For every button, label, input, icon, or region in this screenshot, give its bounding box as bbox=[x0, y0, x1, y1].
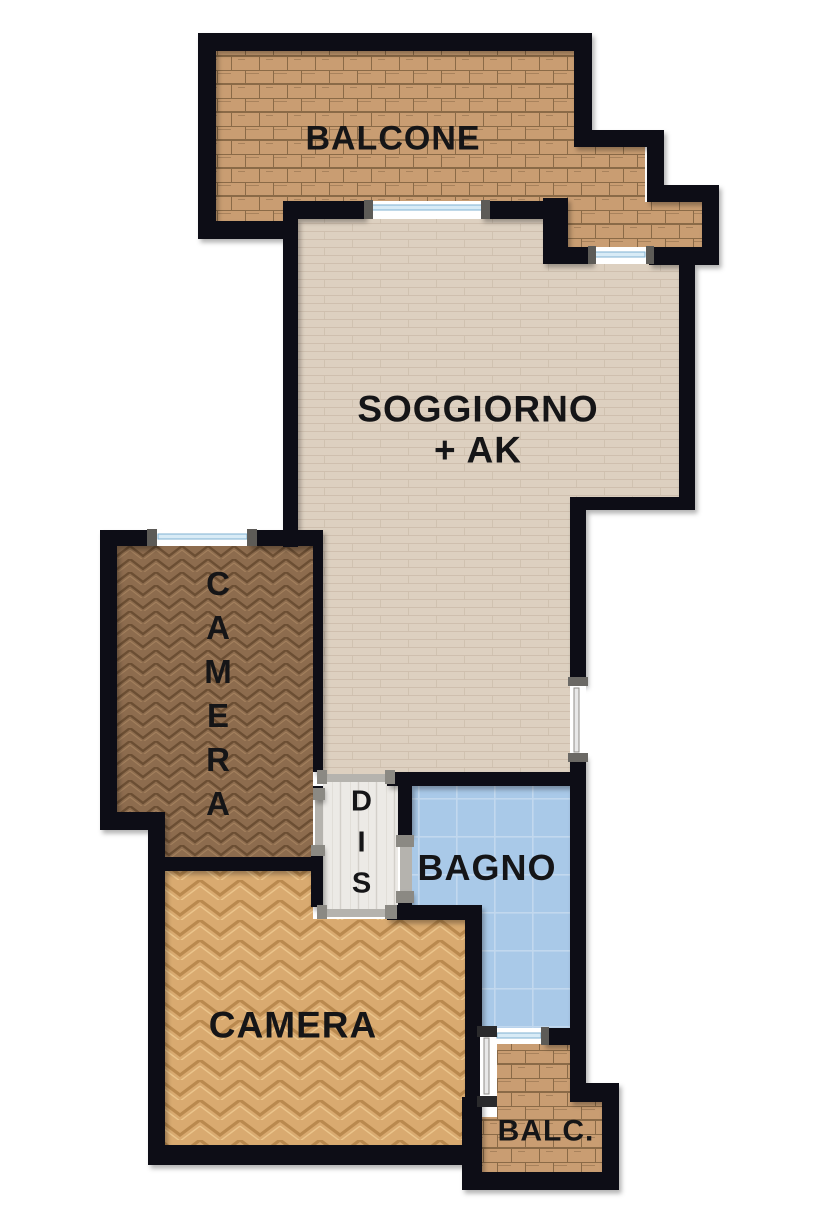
window-balcone-soggiorno bbox=[364, 200, 490, 219]
label-dis: DIS bbox=[347, 786, 376, 909]
floor-plan: BALCONE SOGGIORNO + AK CAMERA DIS BAGNO … bbox=[0, 0, 819, 1229]
label-soggiorno: SOGGIORNO + AK bbox=[357, 389, 598, 470]
label-bagno: BAGNO bbox=[418, 848, 557, 888]
door-dis-bagno bbox=[400, 847, 412, 891]
label-camera-nord: CAMERA bbox=[202, 565, 235, 829]
label-soggiorno-line1: SOGGIORNO bbox=[357, 389, 598, 430]
window-camera1 bbox=[147, 529, 257, 546]
label-balc: BALC. bbox=[498, 1115, 595, 1148]
label-soggiorno-line2: + AK bbox=[357, 430, 598, 471]
label-camera-sud: CAMERA bbox=[209, 1006, 377, 1047]
label-balcone: BALCONE bbox=[305, 120, 480, 157]
window-balcone-soggiorno-2 bbox=[588, 246, 654, 264]
door-dis-camera2 bbox=[327, 909, 385, 917]
window-bagno-balc bbox=[495, 1027, 549, 1045]
window-soggiorno-right bbox=[568, 677, 588, 762]
floor-plan-drawing bbox=[0, 0, 819, 1229]
door-soggiorno-dis bbox=[327, 774, 385, 782]
window-camera2-balc bbox=[477, 1026, 497, 1107]
door-camera1-dis bbox=[315, 800, 323, 845]
